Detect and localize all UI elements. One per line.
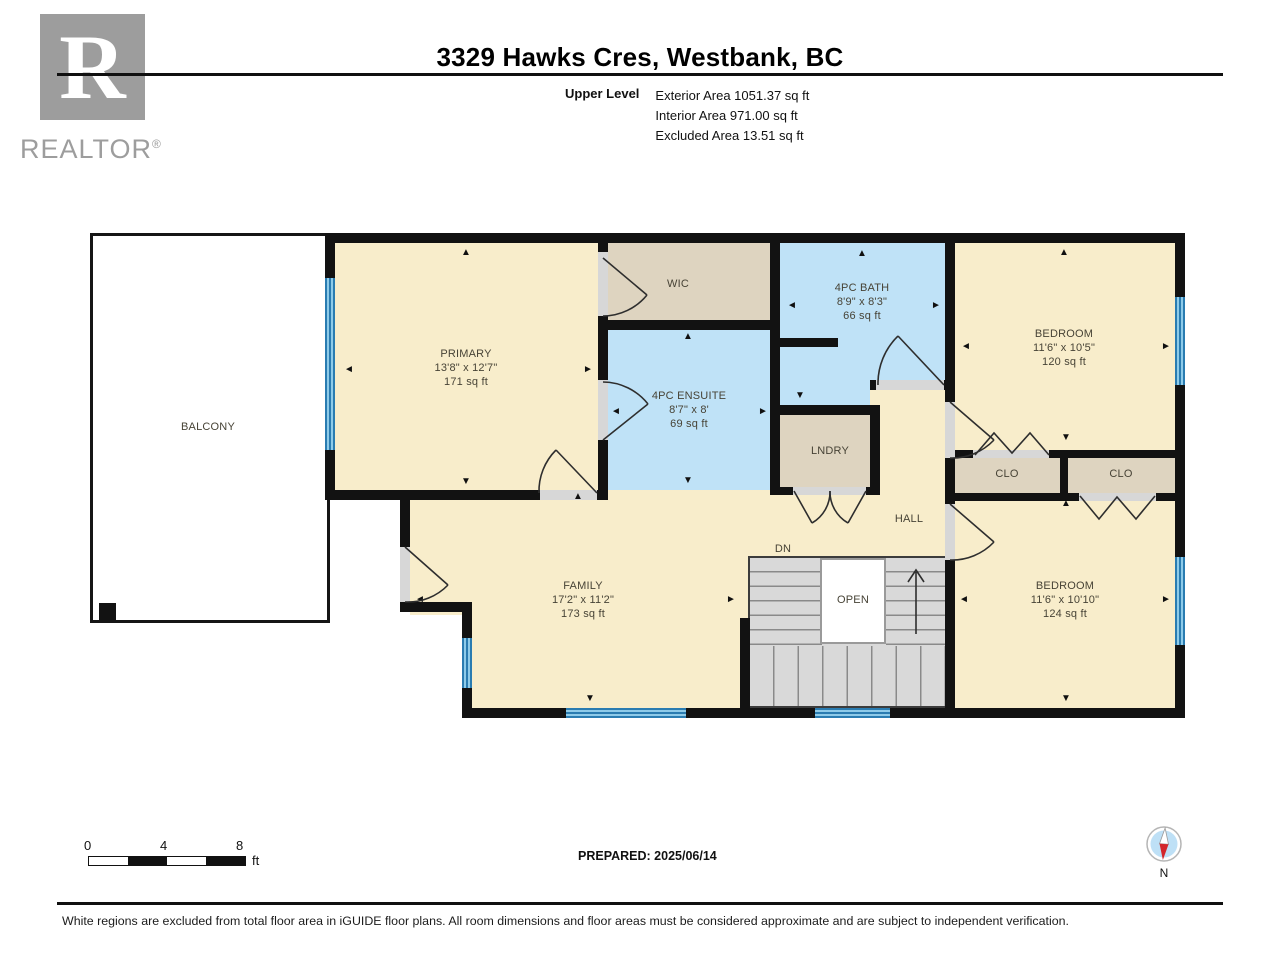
- scale-bar: [88, 856, 246, 866]
- door-opening: [793, 487, 866, 495]
- dimension-arrow-left: ◄: [415, 595, 425, 605]
- realtor-wordmark: REALTOR®: [20, 134, 162, 165]
- dimension-arrow-right: ►: [726, 595, 736, 605]
- window: [325, 278, 335, 450]
- dimension-arrow-up: ▲: [1059, 248, 1069, 258]
- stair-landing: [750, 646, 945, 706]
- realtor-logo: R: [40, 14, 145, 120]
- dimension-arrow-down: ▼: [683, 476, 693, 486]
- dimension-arrow-up: ▲: [857, 249, 867, 259]
- footer-rule: [57, 902, 1223, 905]
- room-label-bedroom2: BEDROOM11'6" x 10'10"124 sq ft: [1031, 579, 1099, 621]
- door-opening: [540, 490, 597, 500]
- room-label-closet1: CLO: [995, 467, 1018, 481]
- staircase: [748, 556, 947, 708]
- dimension-arrow-up: ▲: [573, 492, 583, 502]
- door-opening: [973, 450, 1049, 458]
- interior-area: Interior Area 971.00 sq ft: [655, 106, 809, 126]
- room-label-laundry: LNDRY: [811, 444, 849, 458]
- dimension-arrow-down: ▼: [585, 694, 595, 704]
- door-opening: [400, 547, 410, 602]
- door-opening: [945, 402, 955, 458]
- window: [1175, 557, 1185, 645]
- room-label-closet2: CLO: [1109, 467, 1132, 481]
- wall: [945, 233, 955, 718]
- scale-unit: ft: [252, 853, 259, 868]
- wall: [1060, 450, 1068, 501]
- room-label-bedroom1: BEDROOM11'6" x 10'5"120 sq ft: [1033, 327, 1095, 369]
- dimension-arrow-up: ▲: [461, 248, 471, 258]
- level-label: Upper Level: [565, 86, 639, 146]
- wall: [770, 405, 880, 415]
- compass-north-label: N: [1160, 866, 1169, 880]
- dimension-arrow-right: ►: [583, 365, 593, 375]
- dimension-arrow-left: ◄: [961, 342, 971, 352]
- room-label-primary: PRIMARY13'8" x 12'7"171 sq ft: [435, 347, 498, 389]
- wall: [770, 243, 780, 490]
- wic-area: [608, 243, 770, 320]
- scale-tick-4: 4: [160, 838, 167, 853]
- stair-flight-left: [750, 558, 822, 646]
- stair-flight-right: [886, 558, 945, 646]
- room-label-balcony: BALCONY: [181, 420, 235, 434]
- door-opening: [876, 380, 944, 390]
- room-label-ensuite: 4PC ENSUITE8'7" x 8'69 sq ft: [652, 389, 726, 431]
- page-title: 3329 Hawks Cres, Westbank, BC: [0, 42, 1280, 73]
- stairs-dn-label: DN: [775, 542, 791, 556]
- dimension-arrow-down: ▼: [461, 477, 471, 487]
- prepared-date: PREPARED: 2025/06/14: [578, 849, 717, 863]
- dimension-arrow-up: ▲: [683, 332, 693, 342]
- dimension-arrow-left: ◄: [959, 595, 969, 605]
- dimension-arrow-down: ▼: [1061, 694, 1071, 704]
- wall: [870, 405, 880, 495]
- wall: [740, 618, 750, 718]
- door-opening: [598, 380, 608, 440]
- dimension-arrow-right: ►: [758, 407, 768, 417]
- room-label-hall: HALL: [895, 512, 923, 526]
- window: [815, 708, 890, 718]
- dimension-arrow-right: ►: [1161, 595, 1171, 605]
- dimension-arrow-left: ◄: [787, 301, 797, 311]
- room-label-family: FAMILY17'2" x 11'2"173 sq ft: [552, 579, 614, 621]
- wall: [325, 233, 1185, 243]
- window: [566, 708, 686, 718]
- scale-tick-8: 8: [236, 838, 243, 853]
- scale-tick-0: 0: [84, 838, 91, 853]
- door-opening: [945, 504, 955, 560]
- realtor-logo-r: R: [59, 21, 125, 113]
- dimension-arrow-left: ◄: [344, 365, 354, 375]
- balcony-post: [99, 603, 116, 620]
- door-opening: [1079, 493, 1156, 501]
- room-label-bath: 4PC BATH8'9" x 8'3"66 sq ft: [835, 281, 890, 323]
- exterior-area: Exterior Area 1051.37 sq ft: [655, 86, 809, 106]
- header-rule: [57, 73, 1223, 76]
- wall: [780, 338, 838, 347]
- dimension-arrow-down: ▼: [795, 391, 805, 401]
- window: [1175, 297, 1185, 385]
- room-label-wic: WIC: [667, 277, 689, 291]
- dimension-arrow-right: ►: [1161, 342, 1171, 352]
- stairs-open-label: OPEN: [837, 593, 869, 607]
- dimension-arrow-down: ▼: [1061, 433, 1071, 443]
- disclaimer-text: White regions are excluded from total fl…: [62, 914, 1069, 928]
- door-opening: [598, 252, 608, 316]
- dimension-arrow-left: ◄: [611, 407, 621, 417]
- registered-mark: ®: [152, 137, 162, 151]
- floor-plan-page: R REALTOR® 3329 Hawks Cres, Westbank, BC…: [0, 0, 1280, 960]
- window: [462, 638, 472, 688]
- area-lines: Exterior Area 1051.37 sq ft Interior Are…: [655, 86, 809, 146]
- excluded-area: Excluded Area 13.51 sq ft: [655, 126, 809, 146]
- dimension-arrow-right: ►: [931, 301, 941, 311]
- level-summary: Upper Level Exterior Area 1051.37 sq ft …: [565, 86, 809, 146]
- compass-icon: [1140, 822, 1188, 870]
- wall: [598, 320, 780, 330]
- dimension-arrow-up: ▲: [1061, 499, 1071, 509]
